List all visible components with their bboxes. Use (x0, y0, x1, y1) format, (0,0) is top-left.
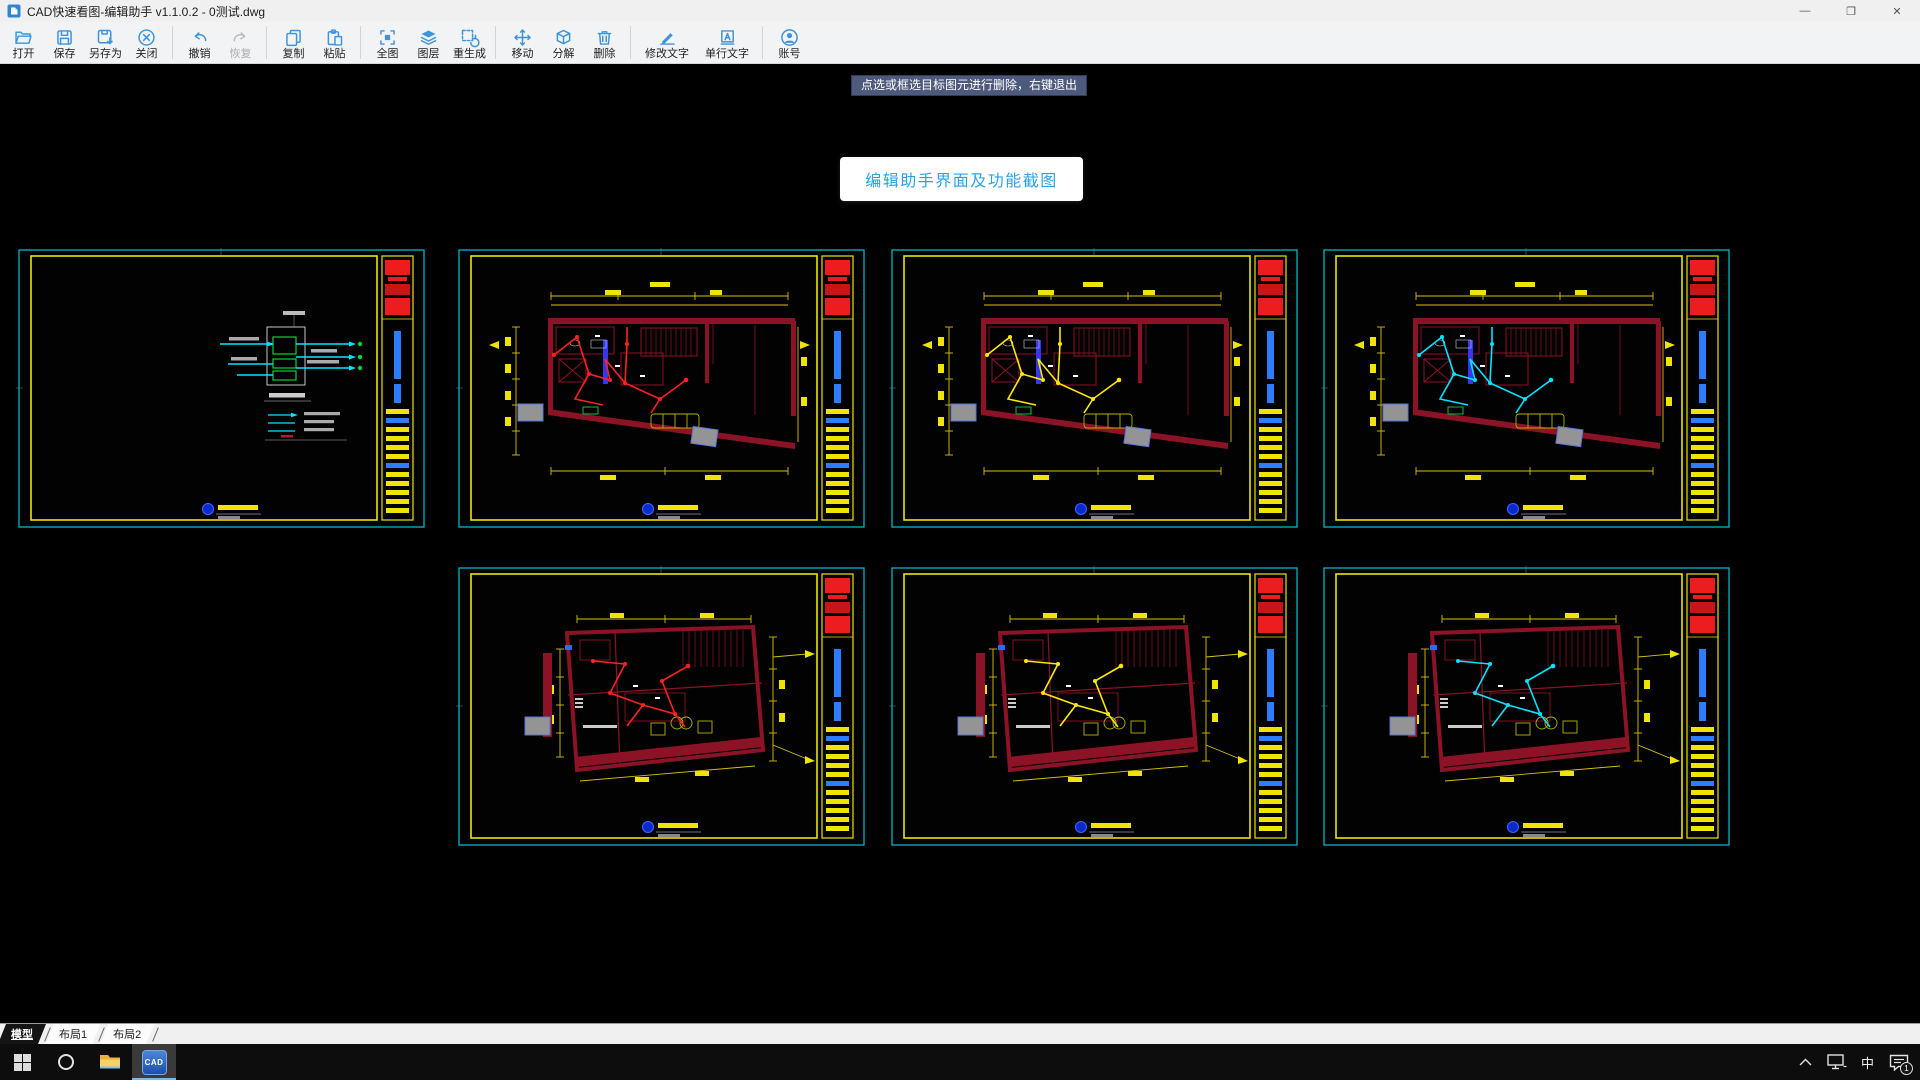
toolbar-separator (172, 26, 173, 59)
paste-icon (324, 26, 345, 48)
notification-icon[interactable]: 1 (1883, 1044, 1914, 1080)
window-title: CAD快速看图-编辑助手 v1.1.0.2 - 0测试.dwg (27, 3, 265, 20)
toolbar-button-label: 关闭 (136, 48, 158, 61)
toolbar-button-label: 图层 (418, 48, 440, 61)
toolbar-separator (495, 26, 496, 59)
main-toolbar: 打开保存另存为关闭撤销恢复复制粘贴全图图层重生成移动分解删除修改文字单行文字账号 (0, 22, 1920, 64)
redo-button: 恢复 (220, 22, 261, 63)
toolbar-button-label: 打开 (13, 48, 35, 61)
toolbar-button-label: 全图 (377, 48, 399, 61)
copy-button[interactable]: 复制 (273, 22, 314, 63)
full-view-button[interactable]: 全图 (367, 22, 408, 63)
close-file-button[interactable]: 关闭 (126, 22, 167, 63)
toolbar-separator (762, 26, 763, 59)
app-logo-icon (7, 4, 21, 18)
save-as-icon (95, 26, 116, 48)
drawing-sheet-2[interactable] (455, 247, 868, 530)
minimize-button[interactable]: — (1782, 0, 1828, 22)
paste-button[interactable]: 粘贴 (314, 22, 355, 63)
copy-icon (283, 26, 304, 48)
toolbar-separator (266, 26, 267, 59)
open-button[interactable]: 打开 (3, 22, 44, 63)
drawing-sheet-7[interactable] (1320, 565, 1733, 848)
window-controls: — ❐ ✕ (1782, 0, 1920, 22)
edit-assistant-screenshot-button[interactable]: 编辑助手界面及功能截图 (840, 157, 1083, 201)
save-as-button[interactable]: 另存为 (85, 22, 126, 63)
drawing-canvas[interactable]: 点选或框选目标图元进行删除，右键退出 编辑助手界面及功能截图 (0, 64, 1920, 1023)
move-icon (512, 26, 533, 48)
title-bar: CAD快速看图-编辑助手 v1.1.0.2 - 0测试.dwg — ❐ ✕ (0, 0, 1920, 22)
close-circle-icon (136, 26, 157, 48)
drawing-sheet-5[interactable] (455, 565, 868, 848)
explode-button[interactable]: 分解 (543, 22, 584, 63)
trash-icon (594, 26, 615, 48)
toolbar-button-label: 恢复 (230, 48, 252, 61)
toolbar-button-label: 复制 (283, 48, 305, 61)
edit-text-icon (657, 26, 678, 48)
single-text-icon (717, 26, 738, 48)
toolbar-button-label: 修改文字 (645, 48, 689, 61)
cad-app-icon: CAD (142, 1050, 167, 1075)
toolbar-button-label: 保存 (54, 48, 76, 61)
single-text-button[interactable]: 单行文字 (697, 22, 757, 63)
undo-button[interactable]: 撤销 (179, 22, 220, 63)
explode-icon (553, 26, 574, 48)
file-explorer-icon[interactable] (88, 1044, 132, 1080)
layout-tab-3[interactable]: 布局2 (100, 1024, 154, 1044)
windows-taskbar: CAD 中 1 (0, 1044, 1920, 1080)
regen-icon (459, 26, 480, 48)
drawing-sheet-3[interactable] (888, 247, 1301, 530)
start-button[interactable] (0, 1044, 44, 1080)
toolbar-button-label: 分解 (553, 48, 575, 61)
toolbar-separator (630, 26, 631, 59)
layout-tab-bar: 模型布局1布局2 (0, 1023, 1920, 1044)
layers-icon (418, 26, 439, 48)
drawing-sheet-4[interactable] (1320, 247, 1733, 530)
redo-icon (230, 26, 251, 48)
full-extent-icon (377, 26, 398, 48)
app-window: CAD快速看图-编辑助手 v1.1.0.2 - 0测试.dwg — ❐ ✕ 打开… (0, 0, 1920, 1044)
save-icon (54, 26, 75, 48)
folder-open-icon (13, 26, 34, 48)
toolbar-button-label: 删除 (594, 48, 616, 61)
toolbar-button-label: 粘贴 (324, 48, 346, 61)
toolbar-separator (360, 26, 361, 59)
layers-button[interactable]: 图层 (408, 22, 449, 63)
search-icon[interactable] (44, 1044, 88, 1080)
toolbar-button-label: 单行文字 (705, 48, 749, 61)
move-button[interactable]: 移动 (502, 22, 543, 63)
toolbar-button-label: 另存为 (89, 48, 122, 61)
layout-tab-2[interactable]: 布局1 (46, 1024, 100, 1044)
drawing-sheet-6[interactable] (888, 565, 1301, 848)
toolbar-button-label: 移动 (512, 48, 534, 61)
cad-app-taskbar-button[interactable]: CAD (132, 1044, 176, 1080)
network-display-icon[interactable] (1821, 1044, 1852, 1080)
delete-button[interactable]: 删除 (584, 22, 625, 63)
account-button[interactable]: 账号 (769, 22, 810, 63)
save-button[interactable]: 保存 (44, 22, 85, 63)
layout-tab-1[interactable]: 模型 (0, 1024, 46, 1044)
regen-button[interactable]: 重生成 (449, 22, 490, 63)
drawing-sheet-1[interactable] (15, 247, 428, 530)
toolbar-button-label: 撤销 (189, 48, 211, 61)
account-icon (779, 26, 800, 48)
edit-text-button[interactable]: 修改文字 (637, 22, 697, 63)
close-button[interactable]: ✕ (1874, 0, 1920, 22)
system-tray: 中 1 (1790, 1044, 1920, 1080)
undo-icon (189, 26, 210, 48)
ime-indicator[interactable]: 中 (1852, 1044, 1883, 1080)
toolbar-button-label: 账号 (779, 48, 801, 61)
tab-divider (152, 1027, 159, 1041)
toolbar-button-label: 重生成 (453, 48, 486, 61)
maximize-button[interactable]: ❐ (1828, 0, 1874, 22)
delete-mode-tooltip: 点选或框选目标图元进行删除，右键退出 (851, 75, 1087, 96)
tray-chevron-icon[interactable] (1790, 1044, 1821, 1080)
notification-badge: 1 (1900, 1062, 1913, 1075)
